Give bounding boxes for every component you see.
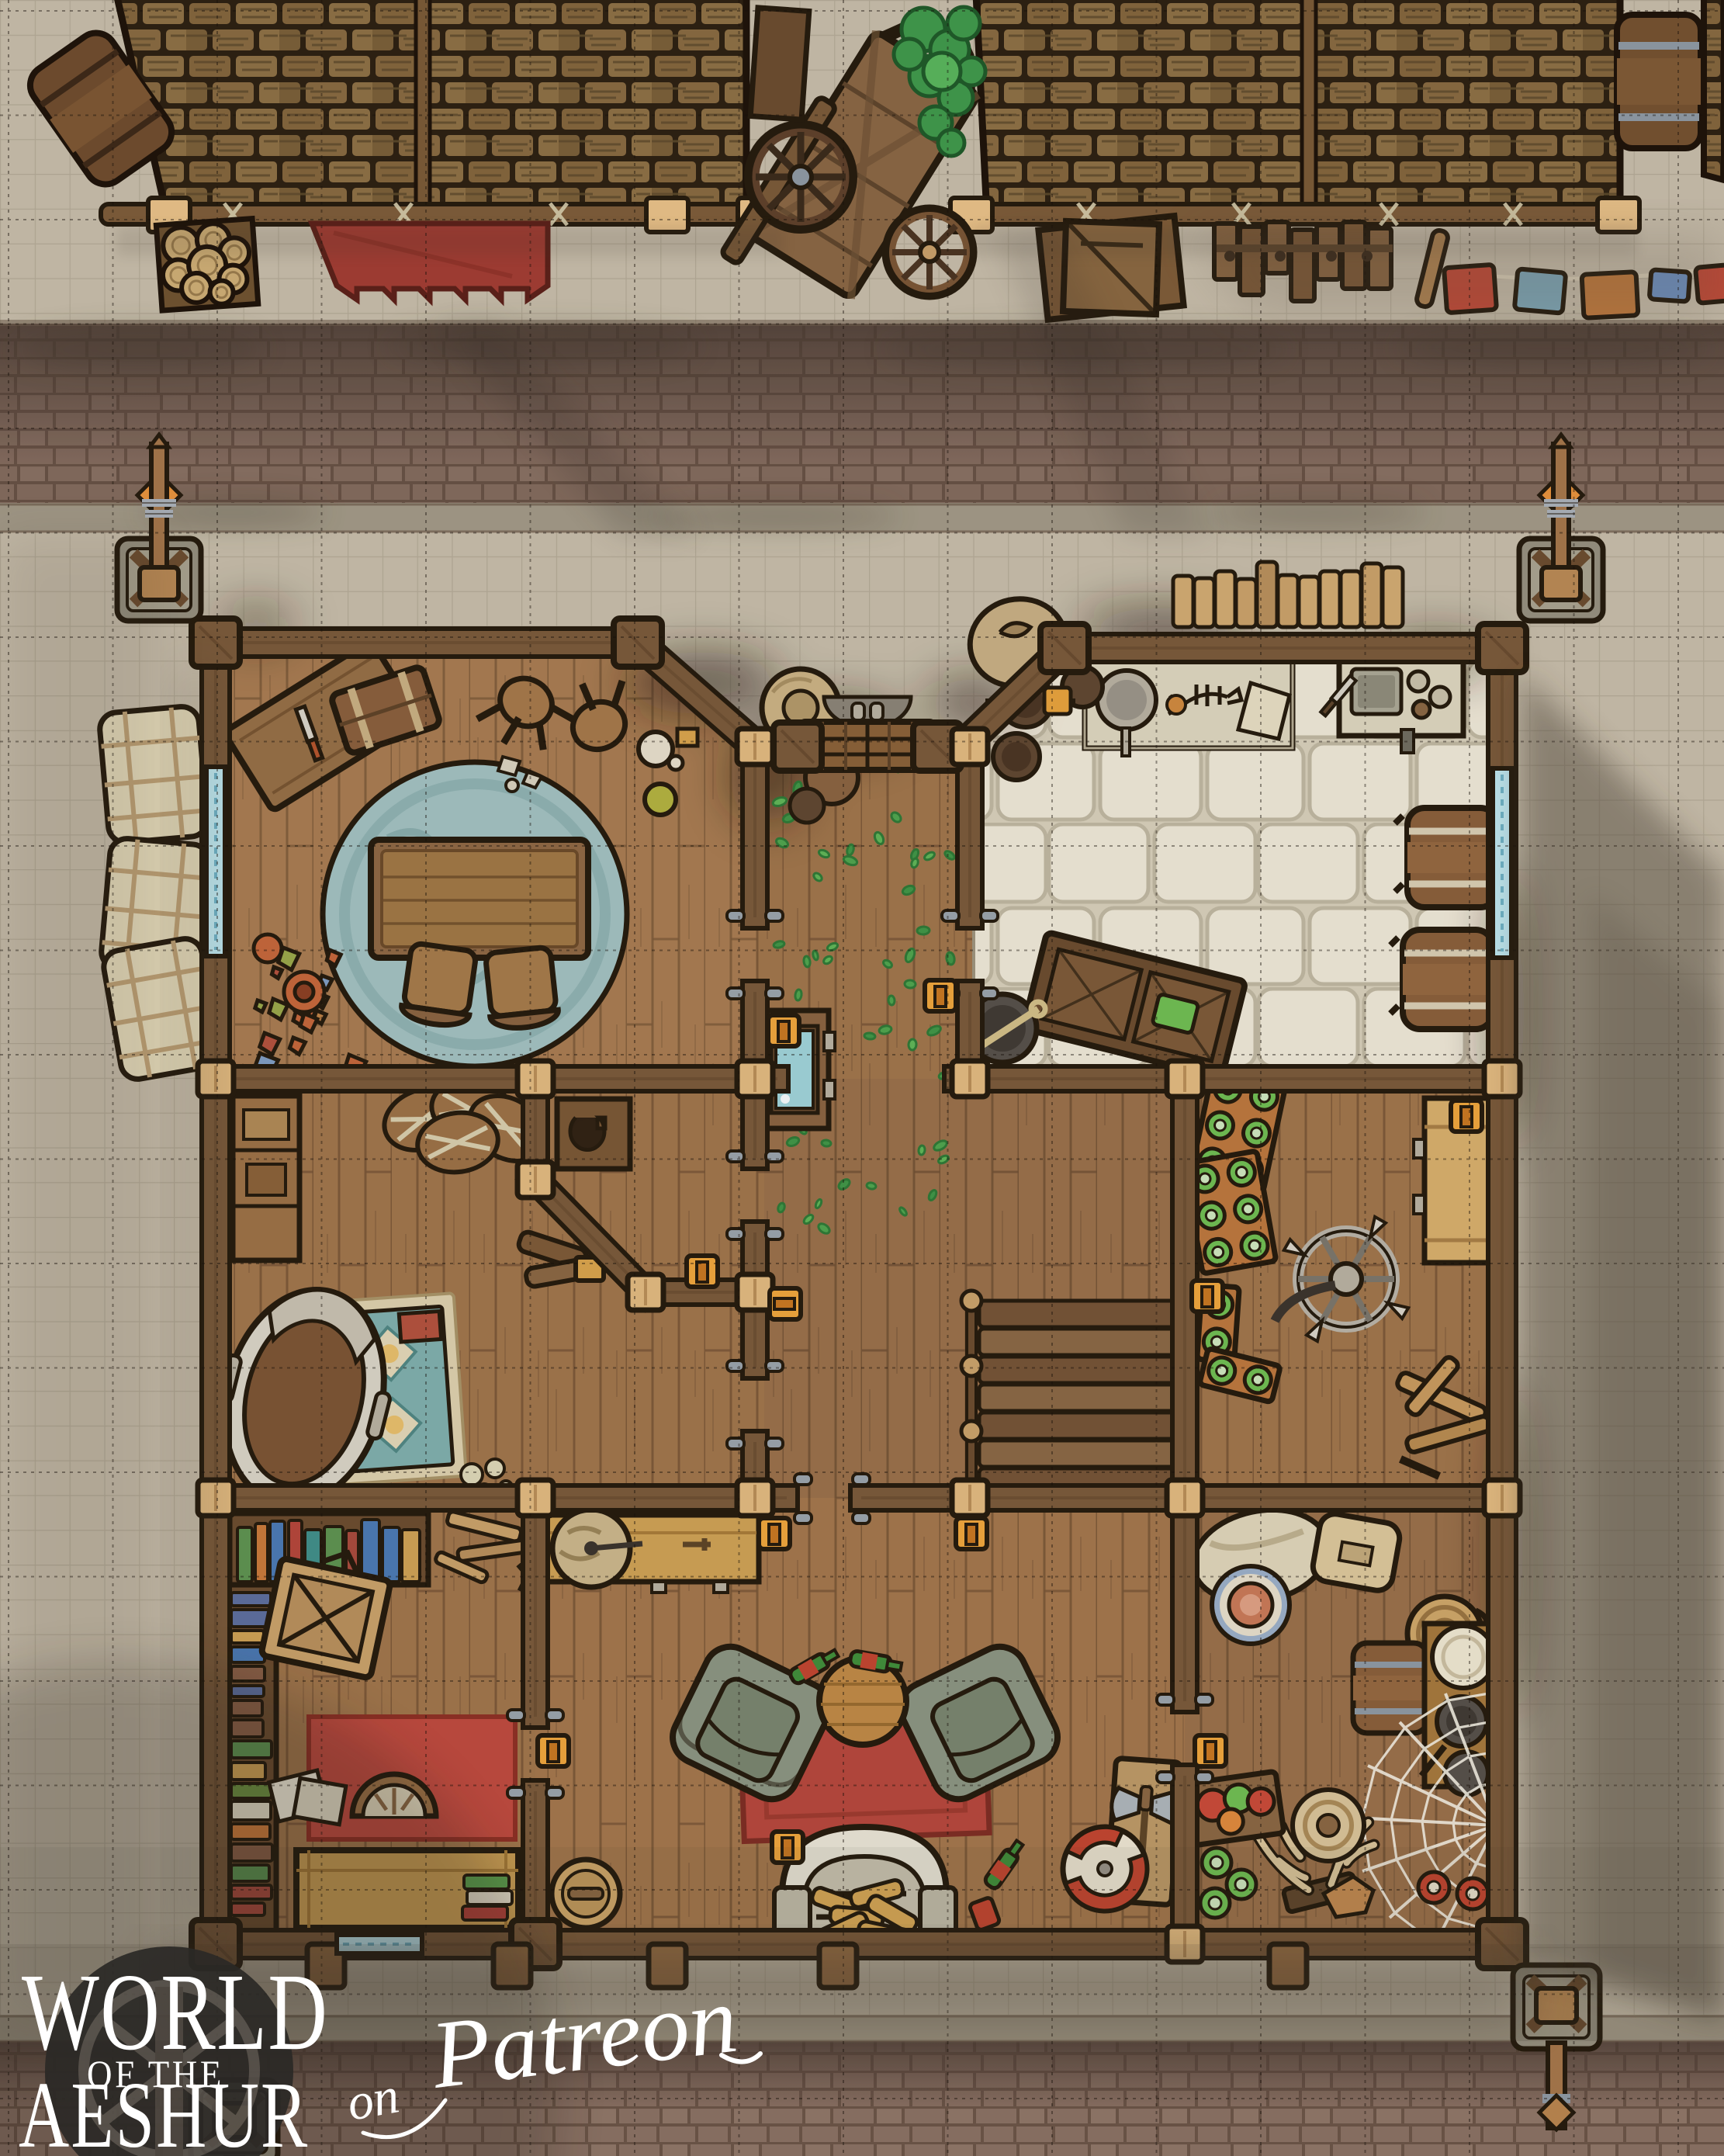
svg-text:AESHUR: AESHUR — [19, 2063, 309, 2156]
svg-text:on: on — [343, 2067, 403, 2131]
